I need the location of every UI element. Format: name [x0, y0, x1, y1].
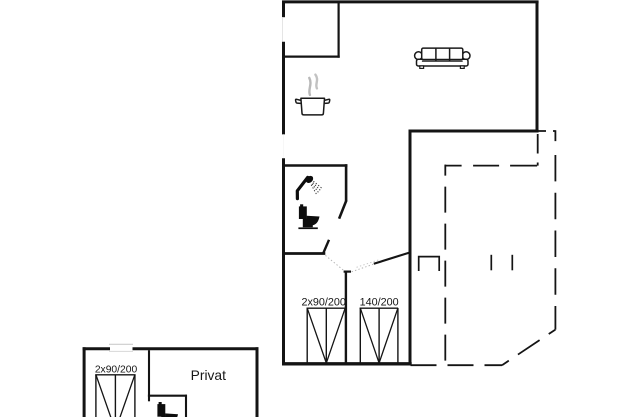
svg-text:2x90/200: 2x90/200 — [301, 297, 345, 309]
svg-text:140/200: 140/200 — [360, 297, 399, 309]
svg-text:Privat: Privat — [191, 368, 226, 383]
svg-text:2x90/200: 2x90/200 — [95, 365, 138, 376]
